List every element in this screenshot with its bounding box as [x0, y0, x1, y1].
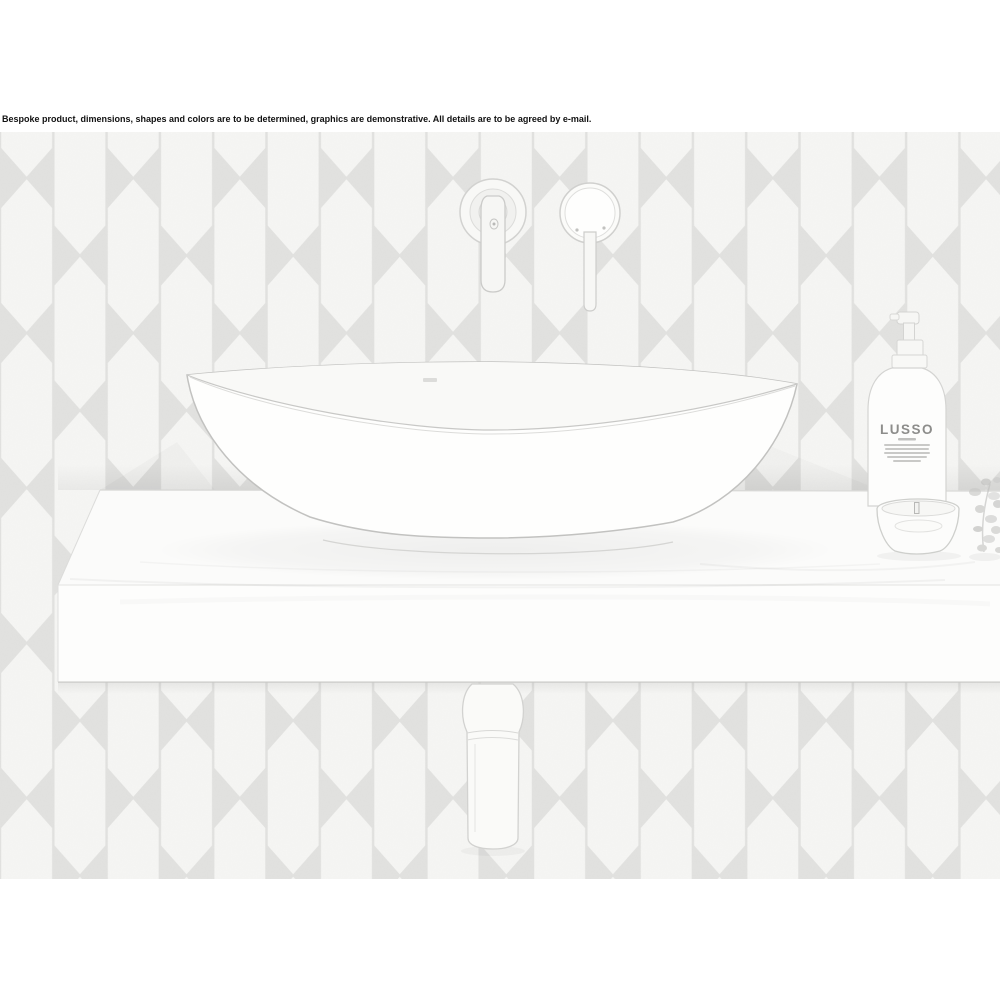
candle-wax-surface — [895, 520, 942, 532]
product-image-page: Bespoke product, dimensions, shapes and … — [0, 0, 1000, 1000]
basin-logo-mark — [423, 378, 437, 382]
bottle-trap-drain — [461, 684, 525, 856]
handle-screw-dot — [575, 228, 578, 231]
pump-spout — [890, 314, 899, 320]
product-photo: LUSSO — [0, 132, 1000, 879]
pump-head — [897, 312, 919, 324]
disclaimer-text: Bespoke product, dimensions, shapes and … — [2, 114, 998, 124]
handle-screw-dot — [602, 226, 605, 229]
cap-ring — [892, 355, 927, 368]
candle-wick — [915, 503, 920, 514]
soap-dispenser-brand: LUSSO — [880, 422, 934, 437]
pump-collar — [897, 340, 923, 356]
pump-stem — [904, 323, 915, 341]
